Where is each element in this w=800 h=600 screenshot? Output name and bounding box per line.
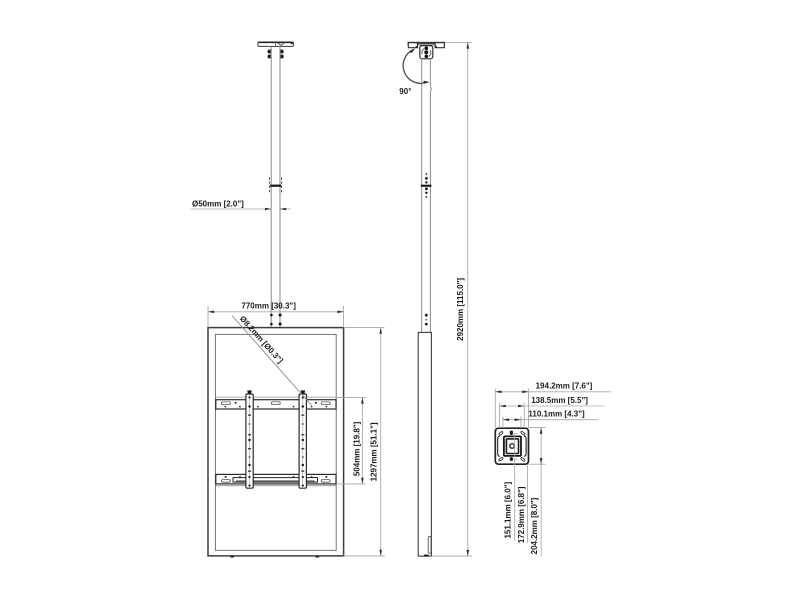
svg-text:151.1mm [6.0"]: 151.1mm [6.0"] (504, 482, 513, 539)
svg-text:138.5mm [5.5"]: 138.5mm [5.5"] (531, 396, 588, 405)
svg-text:1297mm [51.1"]: 1297mm [51.1"] (369, 422, 378, 481)
svg-text:Ø50mm [2.0"]: Ø50mm [2.0"] (192, 199, 244, 208)
svg-text:770mm [30.3"]: 770mm [30.3"] (241, 302, 296, 311)
svg-text:504mm [19.8"]: 504mm [19.8"] (352, 421, 361, 476)
svg-text:110.1mm [4.3"]: 110.1mm [4.3"] (528, 409, 585, 418)
svg-text:204.2mm [8.0"]: 204.2mm [8.0"] (530, 497, 539, 554)
svg-text:2920mm [115.0"]: 2920mm [115.0"] (456, 278, 465, 341)
svg-text:172.9mm [6.8"]: 172.9mm [6.8"] (517, 486, 526, 543)
svg-text:194.2mm [7.6"]: 194.2mm [7.6"] (536, 382, 593, 391)
svg-text:90°: 90° (399, 87, 411, 96)
